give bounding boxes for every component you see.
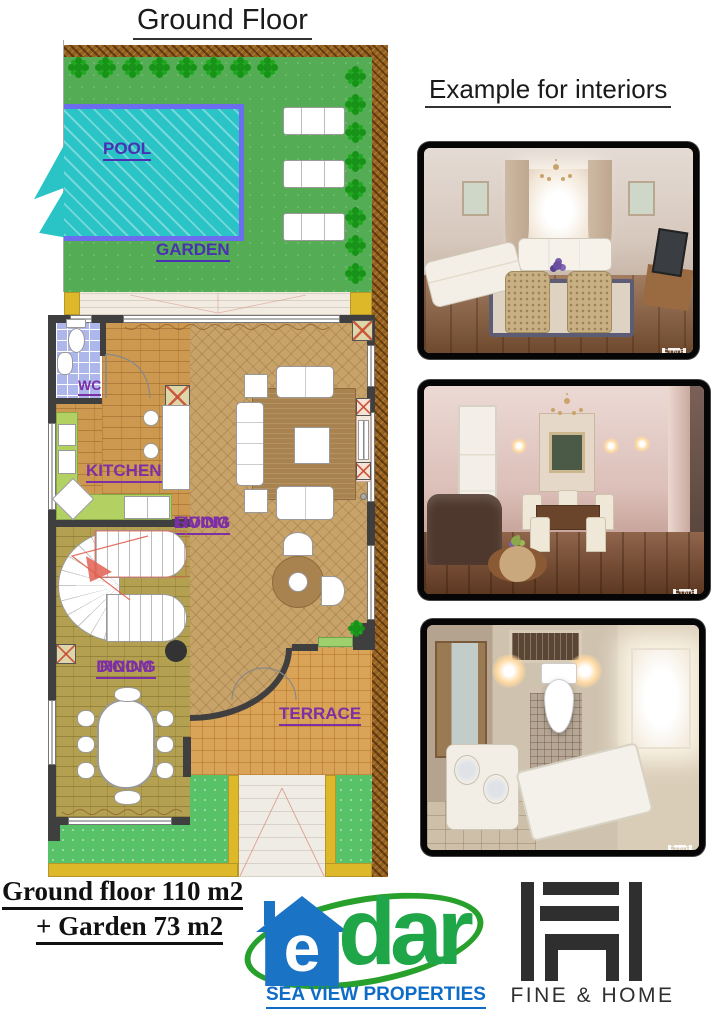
dining-chair [114,687,141,702]
dining-chair [77,736,95,753]
interior-photo-bathroom: FINE & HOME [421,619,705,856]
armchair [283,532,313,556]
column [668,386,690,536]
sun-lounger [283,107,345,135]
tree-icon [351,128,360,137]
armchair [567,271,613,333]
fridge [58,450,76,474]
tree-icon [74,63,83,72]
wall [48,519,190,527]
window [48,700,56,765]
window [367,545,375,620]
tree-icon [351,100,360,109]
pool [64,104,244,241]
stove [58,424,76,446]
fine-home-logo: FINE & HOME [490,878,695,1014]
terrace-label: TERRACE [279,705,361,726]
kitchen-label: KITCHEN [86,462,162,483]
tree-icon [155,63,164,72]
watermark-text: FINE & HOME [657,348,686,359]
walkway-curb [64,292,80,315]
fine-home-logo-bar [521,882,534,981]
tree-icon [351,213,360,222]
mirror-cabinet [435,641,487,758]
dining-chair [77,762,95,779]
stool [143,410,159,426]
wall-sconce [511,438,527,454]
area-text-ground-floor: Ground floor 110 m2 [2,876,243,910]
dining-table [97,699,155,789]
tree-icon [351,269,360,278]
garden-label: GARDEN [156,241,230,262]
wall [48,823,60,841]
window [123,315,340,323]
ottoman [244,489,268,513]
yellow-curb [48,863,238,877]
yellow-curb [325,775,336,877]
area-text-garden: + Garden 73 m2 [36,911,223,945]
side-table [488,546,547,581]
interiors-title: Example for interiors [425,74,671,108]
edar-letter-e: e [284,915,321,981]
sink [454,755,480,785]
page-title: Ground Floor [133,4,312,40]
walkway-curb [350,292,372,315]
sink [483,774,509,804]
tree-icon [263,63,272,72]
wall [183,737,191,777]
entrance-steps [239,775,325,877]
lawn-patch [336,775,372,877]
dining-chair [156,710,174,727]
tree-icon [351,72,360,81]
fine-home-logo-bar [629,882,642,981]
dining-chair [77,710,95,727]
loveseat [276,366,334,398]
shelf-icon [356,398,371,416]
stair-flight [95,530,187,578]
tree-icon [101,63,110,72]
dining-chair [156,736,174,753]
pillar-icon [352,320,373,341]
ottoman [244,374,268,398]
stair-flight [106,594,187,642]
wall-art [549,432,585,474]
fine-home-wordmark: FINE & HOME [490,984,695,1008]
interior-photo-dining-room: FINE & HOME [418,380,710,600]
pillar-icon [56,644,76,664]
wall-art [462,181,489,216]
sofa [518,238,612,271]
wall [56,398,102,404]
tree-icon [351,157,360,166]
dining-chair [530,517,550,552]
fixture-dot [360,493,367,500]
sofa [236,402,264,486]
wall-art [628,181,655,216]
tv [358,420,369,460]
window [367,345,375,387]
plant-icon [353,625,360,632]
fine-home-logo-bar [540,906,619,921]
sun-lounger [283,160,345,188]
structural-column [165,640,187,662]
pool-water-decal [34,136,68,238]
window [68,817,172,825]
armchair [505,271,551,333]
edar-logo-text: dar [338,884,468,981]
wall-sconce [634,436,650,452]
walkway [64,292,372,315]
tree-icon [209,63,218,72]
edar-tagline: SEA VIEW PROPERTIES [266,984,486,1009]
yellow-curb [228,775,239,877]
cabinet [124,496,170,519]
dining-chair [156,762,174,779]
dining-chair [586,517,606,552]
dining-chair [114,790,141,805]
tree-icon [351,185,360,194]
loveseat [276,486,334,520]
shelf-icon [356,462,371,480]
tree-icon [182,63,191,72]
wash-basin [57,352,73,375]
tree-icon [128,63,137,72]
toilet-bowl [68,328,85,353]
hedge [318,637,353,647]
pool-label: POOL [103,140,151,161]
watermark-text: FINE & HOME [663,845,692,856]
wc-label: WC [78,378,101,396]
toilet [66,319,86,328]
photo-window [631,648,691,749]
vanity-unit [446,744,519,830]
wall [172,817,190,825]
armchair [321,576,345,606]
watermark-text: FINE & HOME [668,589,697,600]
interior-photo-living-room: FINE & HOME [418,142,699,359]
wall [92,315,123,323]
fine-home-logo-door-icon [545,934,619,981]
table-plate [288,572,308,592]
lawn-patch [190,775,228,865]
fruit-bowl [511,536,521,546]
yellow-curb [325,863,372,877]
kitchen-island [162,405,190,490]
tree-icon [236,63,245,72]
hatch-border-top [64,45,372,57]
coffee-table [294,427,330,464]
stool [143,443,159,459]
wall [292,644,318,651]
flower-vase [553,261,562,270]
brochure-page: Ground Floor Example for interiors POOL … [0,0,714,1024]
sun-lounger [283,213,345,241]
tree-icon [351,241,360,250]
wall [100,318,106,356]
fine-home-logo-bar [543,882,619,895]
